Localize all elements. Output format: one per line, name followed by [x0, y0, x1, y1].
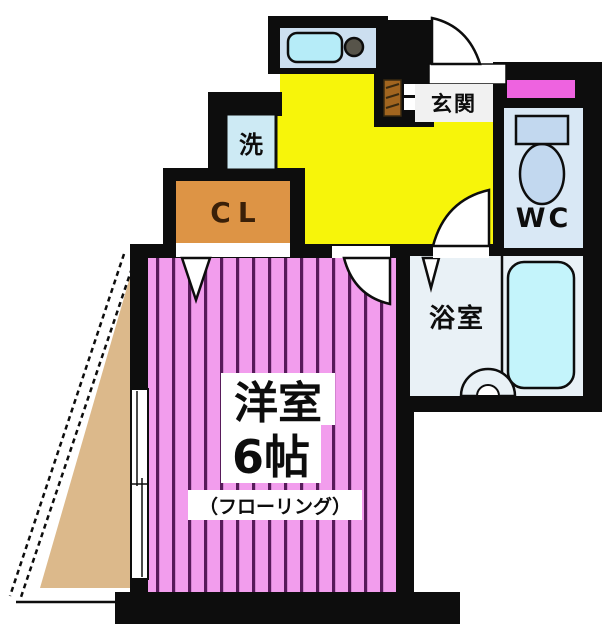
entry-fixture-panel — [404, 84, 415, 95]
sink-icon — [288, 33, 342, 62]
floor-plan: 洗 CL 玄関 WC 浴室 洋室 6帖 （フローリング） — [0, 0, 609, 640]
wc-label: WC — [504, 196, 583, 240]
closet-label: CL — [176, 181, 290, 243]
wall-room-left — [130, 250, 148, 392]
toilet-icon — [516, 116, 568, 204]
stove-burner-icon — [345, 38, 363, 56]
closet-opening — [176, 243, 290, 257]
washer-label: 洗 — [226, 114, 276, 170]
room-window — [131, 389, 148, 579]
kitchen-counter — [280, 28, 376, 68]
bathroom-label: 浴室 — [411, 298, 503, 334]
entrance-door — [429, 18, 506, 84]
main-room-floor-note: （フローリング） — [188, 490, 362, 520]
balcony — [10, 254, 133, 602]
entrance-threshold — [429, 64, 506, 84]
entrance-label: 玄関 — [415, 84, 493, 122]
wc-window — [507, 80, 575, 98]
bathroom-door-opening — [433, 246, 489, 258]
floor-plan-canvas — [0, 0, 609, 640]
entry-fixture-panel — [404, 98, 415, 110]
main-room-name: 洋室 — [221, 373, 335, 425]
entrance-door-swing-icon — [432, 18, 480, 64]
bathtub-icon — [508, 262, 574, 388]
main-room-door-opening — [332, 246, 390, 258]
main-room-size: 6帖 — [221, 425, 321, 483]
